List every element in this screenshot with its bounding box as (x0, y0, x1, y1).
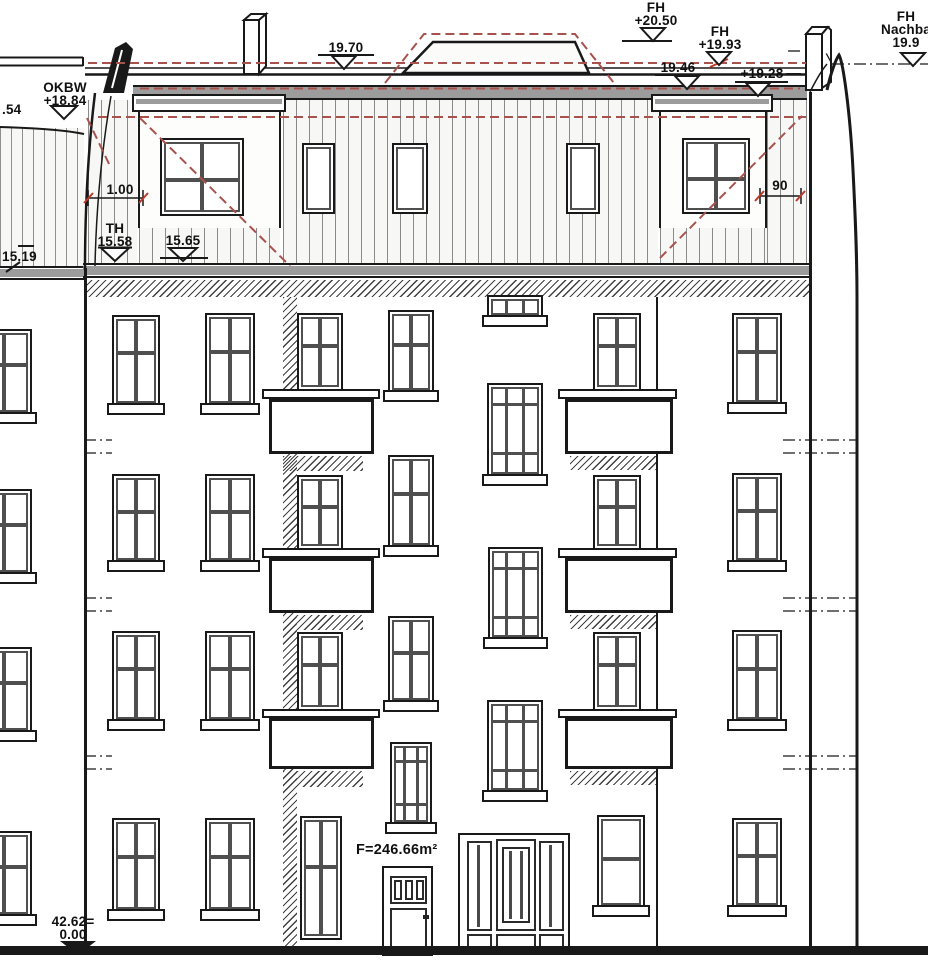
level-label-ground: 42.62= 0.00 (34, 915, 112, 941)
balcony-parapet (565, 718, 673, 769)
cornice-hatch-band (84, 280, 810, 297)
window-sill (385, 822, 437, 834)
window-mv (2, 493, 6, 572)
balcony-slab (262, 389, 380, 399)
window-sill (482, 474, 548, 486)
window-mv (318, 317, 322, 387)
window (302, 143, 335, 214)
window (388, 616, 434, 704)
facade-edge-right (809, 92, 812, 948)
balcony-door (593, 313, 641, 391)
window (0, 831, 32, 918)
window (732, 473, 782, 564)
window-sill (482, 790, 548, 802)
window (566, 143, 600, 214)
balcony-slab (558, 709, 677, 718)
label-line: +20.50 (635, 13, 678, 28)
window-mh2 (394, 760, 428, 763)
window-mh (116, 667, 156, 671)
label-line: 15.19 (2, 249, 37, 264)
window-mv (134, 319, 138, 403)
window-mh (116, 855, 156, 859)
neighbor-cornice-line (0, 278, 86, 280)
balcony-shadow (570, 771, 656, 785)
window-mv (755, 634, 759, 719)
window-mv (615, 317, 619, 387)
dormer-left-cap (132, 94, 286, 112)
window-mh2 (491, 452, 539, 455)
window (392, 143, 428, 214)
window-sill (200, 719, 260, 731)
window-mh (601, 857, 641, 861)
window-mv (409, 314, 413, 390)
label-line: 0.00 (59, 927, 86, 942)
window-mv (318, 479, 322, 546)
window-mh (0, 363, 28, 367)
label-line: +19.28 (741, 66, 784, 81)
neighbor-cornice-line (0, 266, 86, 268)
window-mh (301, 505, 339, 509)
ground-line (0, 946, 928, 955)
window (205, 474, 255, 564)
window-mh (301, 663, 339, 667)
window (160, 138, 244, 216)
neighbor-cornice-band (0, 269, 86, 277)
label-line: F=246.66m² (356, 842, 437, 858)
label-line: 15.65 (166, 233, 201, 248)
balcony-parapet (565, 558, 673, 613)
level-label-15-19: 15.19 (2, 250, 37, 263)
window-mv2 (522, 299, 525, 315)
transom-pane (405, 880, 413, 900)
window-mv2 (505, 704, 508, 790)
window-mv (615, 479, 619, 546)
level-label-okbw: OKBW +18.84 (36, 81, 94, 107)
window-mh (209, 855, 251, 859)
window-mv (755, 317, 759, 402)
window-mh (392, 651, 430, 655)
right-gable (810, 55, 857, 950)
window-sill (383, 545, 439, 557)
balcony-slab (262, 548, 380, 558)
window (112, 631, 160, 723)
dormer-right-sill-siding (660, 228, 767, 264)
dormer-cap-molding (655, 99, 769, 104)
window-mh (304, 865, 338, 869)
window-mv (2, 651, 6, 730)
window-sill (727, 719, 787, 731)
balcony-shadow (283, 771, 363, 787)
label-line: +18.84 (44, 93, 87, 108)
dormer-right-cap (651, 94, 773, 112)
label-line: 1.00 (106, 182, 133, 197)
window-f (491, 299, 539, 315)
window (300, 816, 342, 940)
window-sill (383, 390, 439, 402)
window-mh (736, 350, 778, 354)
window-mh (209, 667, 251, 671)
window-mv2 (416, 746, 419, 822)
level-label-15-65: 15.65 (160, 234, 206, 247)
window-mh (736, 854, 778, 858)
level-label-th: TH 15.58 (93, 222, 137, 248)
window-mv2 (522, 387, 525, 474)
level-label-fh-ridge: FH +19.93 (691, 25, 749, 51)
window-f (306, 147, 331, 210)
main-cornice-band (83, 266, 810, 275)
balcony-door (297, 313, 343, 391)
balcony-slab (262, 709, 380, 718)
window-sill (592, 905, 650, 917)
window-sill (727, 402, 787, 414)
balcony-parapet (269, 399, 374, 454)
level-label-fh-top: FH +20.50 (623, 1, 689, 27)
window (112, 818, 160, 913)
transom-pane (416, 880, 424, 900)
label-line: 90 (772, 178, 787, 193)
window-sill (483, 637, 548, 649)
window-mh (0, 523, 28, 527)
balcony-shadow (570, 615, 656, 629)
window-mh2 (491, 403, 539, 406)
door-glazing-bar (549, 845, 552, 927)
window-mh (164, 178, 240, 182)
balcony-door (593, 475, 641, 550)
window-mh (301, 344, 339, 348)
window-mv2 (403, 746, 406, 822)
balcony-slab (558, 389, 677, 399)
window-mv (755, 477, 759, 560)
level-label-054: .54 (2, 103, 21, 116)
window-mh (209, 350, 251, 354)
window-sill (107, 909, 165, 921)
door-glazing-bar (520, 851, 523, 919)
stairwell-window (487, 700, 543, 794)
window-mh (597, 344, 637, 348)
level-label-19-46: 19.46 (653, 61, 703, 74)
side-door (382, 866, 433, 956)
window (112, 315, 160, 407)
window-mv (200, 142, 204, 212)
balcony-shadow (283, 615, 363, 630)
window-mh (597, 505, 637, 509)
window (732, 630, 782, 723)
window (732, 313, 782, 406)
window-sill (727, 560, 787, 572)
window-mh (116, 351, 156, 355)
window-mh (392, 343, 430, 347)
label-line: .54 (2, 102, 21, 117)
window (682, 138, 750, 214)
window-mv (228, 822, 232, 909)
window-mv2 (505, 387, 508, 474)
window-mv2 (522, 704, 525, 790)
window (112, 474, 160, 564)
door-glazing-bar (477, 845, 480, 927)
window (205, 313, 255, 407)
transom-pane (394, 880, 402, 900)
neighbor-roof-siding (0, 128, 84, 268)
window-sill (107, 719, 165, 731)
window-mv (755, 822, 759, 905)
roof-skylight (403, 42, 589, 73)
window-f (394, 746, 428, 822)
window-mh2 (491, 720, 539, 723)
stairwell-window (487, 383, 543, 478)
window-f (570, 147, 596, 210)
window-sill (200, 560, 260, 572)
window-sill (727, 905, 787, 917)
label-line: 19.9 (892, 35, 919, 50)
balcony-parapet (269, 558, 374, 613)
balcony-shadow (283, 456, 363, 471)
window-mh2 (491, 769, 539, 772)
window-mv (714, 142, 718, 210)
stairwell-window (487, 295, 543, 319)
window-f (492, 551, 539, 637)
firewall-edge-left (84, 268, 87, 948)
elevation-drawing: FH +20.50 FH +19.93 19.70 19.46 +19.28 F… (0, 0, 928, 960)
window-sill (200, 403, 260, 415)
window-mh (736, 509, 778, 513)
window-mv (228, 635, 232, 719)
window-mh (0, 865, 28, 869)
window-mh2 (492, 567, 539, 570)
level-label-19-70: 19.70 (316, 41, 376, 54)
window-mh (736, 667, 778, 671)
staircase-window (390, 742, 432, 826)
window (0, 489, 32, 576)
balcony-door (593, 632, 641, 711)
label-line: 15.58 (98, 234, 133, 249)
window-sill (107, 560, 165, 572)
window-sill (200, 909, 260, 921)
window (0, 647, 32, 734)
balcony-door (297, 475, 343, 550)
balcony-door (297, 632, 343, 711)
label-line: 19.70 (329, 40, 364, 55)
window-mh (686, 177, 746, 181)
window (388, 455, 434, 549)
label-line: +19.93 (699, 37, 742, 52)
window-mh (0, 681, 28, 685)
label-line: 19.46 (661, 60, 696, 75)
door-glazing-bar (509, 851, 512, 919)
window-f (491, 387, 539, 474)
window-sill (107, 403, 165, 415)
window-sill (0, 412, 37, 424)
window-mv2 (505, 551, 508, 637)
window-mv2 (505, 299, 508, 315)
window-mv (2, 835, 6, 914)
window-mv (318, 636, 322, 707)
window (597, 815, 645, 909)
window-mh (597, 663, 637, 667)
dimension-label-90: 90 (760, 179, 800, 192)
window-mh2 (492, 616, 539, 619)
window-mh2 (394, 803, 428, 806)
main-cornice-line (83, 263, 810, 265)
window-mv (2, 333, 6, 412)
window-f (396, 147, 424, 210)
balcony-shadow (570, 456, 656, 470)
window-mv (134, 478, 138, 560)
door-handle (423, 915, 429, 919)
window-mh (209, 510, 251, 514)
window-mv (134, 822, 138, 909)
window-sill (0, 914, 37, 926)
window-mv2 (522, 551, 525, 637)
window-mv (319, 820, 323, 936)
window (0, 329, 32, 416)
window-mh (392, 492, 430, 496)
balcony-parapet (565, 399, 673, 454)
level-label-19-28: +19.28 (733, 67, 791, 80)
window (388, 310, 434, 394)
door-leaf-glass (502, 847, 530, 923)
window-mv (409, 620, 413, 700)
level-label-fh-neighbor: FH Nachba 19.9 (868, 10, 928, 49)
window-mh (116, 510, 156, 514)
balcony-parapet (269, 718, 374, 769)
window-mv (228, 317, 232, 403)
stairwell-window (488, 547, 543, 641)
window-mv (134, 635, 138, 719)
area-label: F=246.66m² (356, 844, 437, 857)
window-mv (228, 478, 232, 560)
window (205, 631, 255, 723)
window (732, 818, 782, 909)
window (205, 818, 255, 913)
dimension-label-100: 1.00 (98, 183, 142, 196)
balcony-slab (558, 548, 677, 558)
dormer-cap-molding (136, 99, 282, 104)
window-f (601, 819, 641, 905)
entrance-door (458, 833, 570, 953)
window-mv (409, 459, 413, 545)
mansard-siding-center (283, 100, 658, 264)
window-sill (482, 315, 548, 327)
window-f (491, 704, 539, 790)
main-cornice-line (83, 276, 810, 278)
window-sill (0, 572, 37, 584)
window-mv (615, 636, 619, 707)
window-sill (383, 700, 439, 712)
window-sill (0, 730, 37, 742)
